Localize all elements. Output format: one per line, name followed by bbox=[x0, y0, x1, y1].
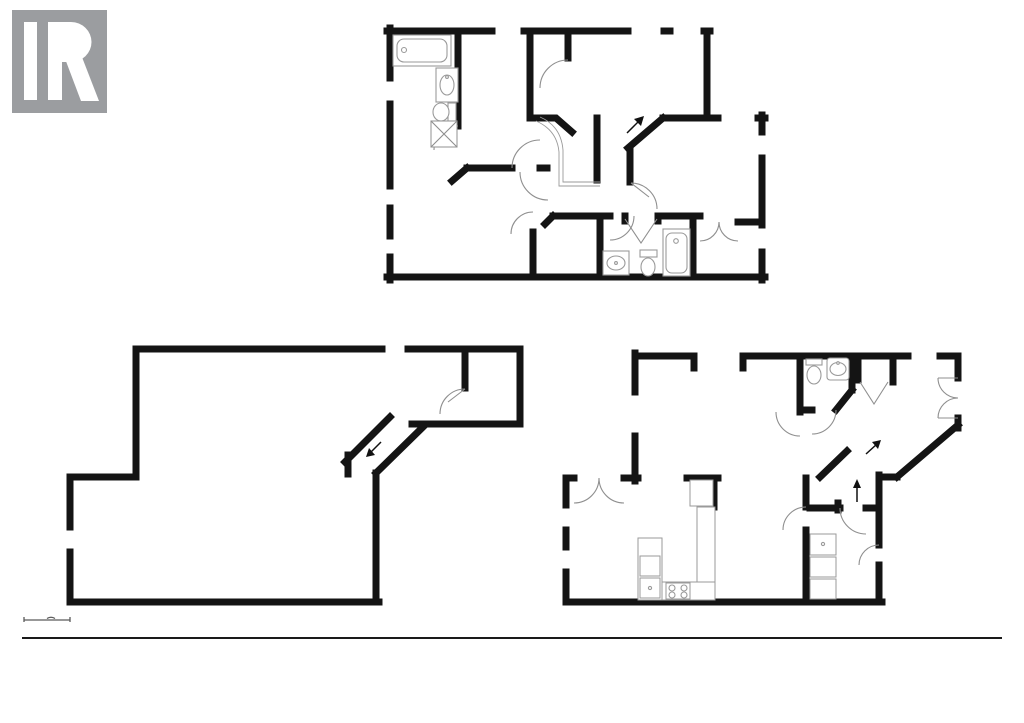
ensuite-fixtures bbox=[603, 229, 690, 276]
refrigerator-symbol bbox=[690, 480, 713, 506]
toilet-symbol bbox=[641, 258, 655, 276]
toilet-symbol bbox=[807, 366, 821, 384]
bathtub-drain bbox=[402, 48, 407, 53]
door-swing bbox=[840, 508, 866, 534]
scale-bar bbox=[24, 617, 70, 622]
bathtub-drain bbox=[674, 239, 679, 244]
french-door-swing bbox=[574, 478, 624, 503]
door-swing bbox=[540, 60, 568, 88]
stove-symbol bbox=[666, 583, 690, 599]
basement-plan bbox=[70, 349, 520, 602]
dishwasher-symbol bbox=[640, 556, 660, 576]
door-swing bbox=[812, 410, 836, 434]
door-swing bbox=[776, 412, 800, 436]
second-level-plan bbox=[387, 28, 765, 280]
divider-line bbox=[22, 637, 1002, 639]
main-level-walls bbox=[566, 353, 958, 602]
kitchen-fixtures bbox=[638, 480, 715, 600]
door-swing bbox=[631, 183, 657, 209]
faucet-dot bbox=[446, 76, 449, 79]
main-level-plan bbox=[566, 353, 958, 602]
basement-walls bbox=[70, 349, 520, 602]
door-swing bbox=[700, 222, 738, 241]
stair-arrow bbox=[627, 121, 639, 133]
washer-symbol bbox=[810, 579, 836, 599]
closet-bifold-door bbox=[625, 219, 657, 243]
door-swing bbox=[520, 172, 548, 200]
laundry-tub-dot bbox=[821, 542, 824, 545]
faucet-dot bbox=[615, 262, 618, 265]
shower-symbol bbox=[431, 121, 457, 147]
sink-dot bbox=[648, 586, 651, 589]
floor-plan-page bbox=[0, 0, 1024, 723]
stair-arrowhead bbox=[853, 479, 861, 488]
front-door-swing bbox=[938, 378, 958, 418]
closet-bifold-door bbox=[860, 382, 888, 404]
laundry-fixtures bbox=[810, 534, 836, 599]
dryer-symbol bbox=[810, 557, 836, 577]
kitchen-counter bbox=[697, 507, 715, 582]
bath-left-fixtures bbox=[393, 35, 458, 147]
door-swing bbox=[440, 389, 465, 414]
door-swing bbox=[512, 140, 540, 168]
main-bath-fixtures bbox=[806, 358, 849, 384]
faucet-dot bbox=[837, 362, 840, 365]
toilet-symbol bbox=[433, 103, 449, 121]
stair-arrow bbox=[371, 442, 381, 452]
toilet-tank bbox=[640, 250, 657, 257]
toilet-tank bbox=[806, 359, 822, 365]
